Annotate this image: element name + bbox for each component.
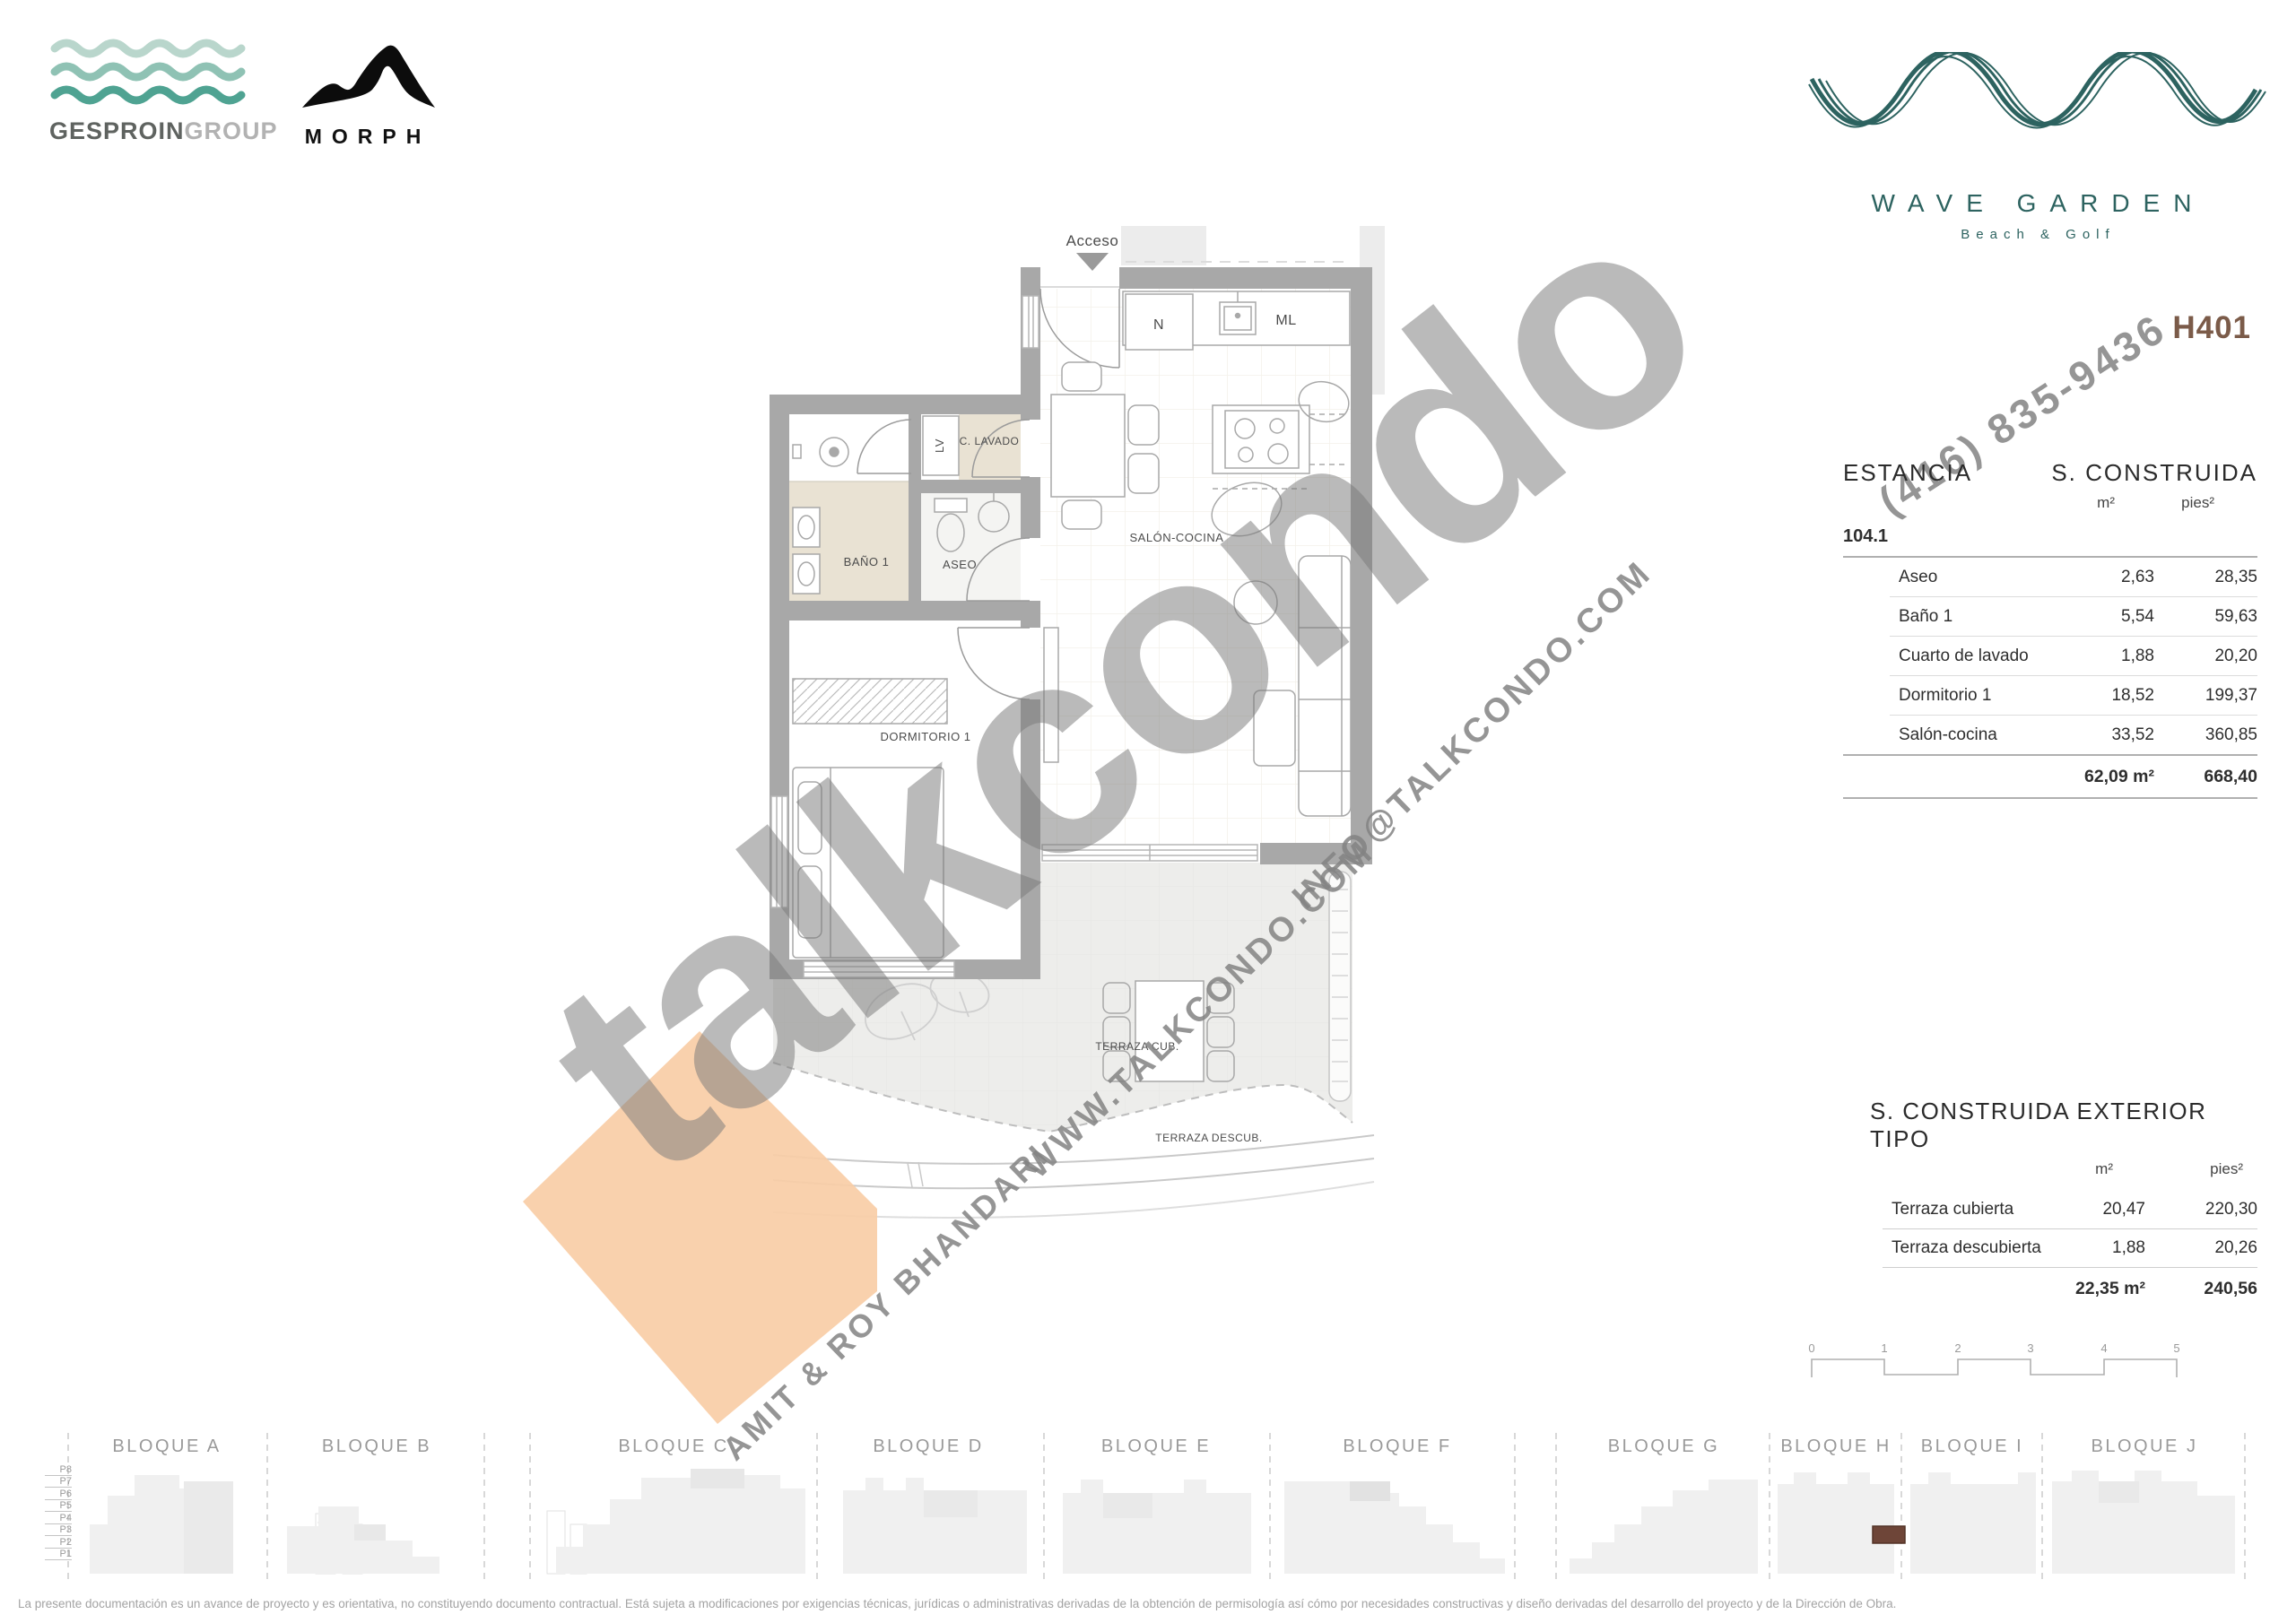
scale-bar: 0 1 2 3 4 5 — [1808, 1341, 2179, 1377]
c-lavado-label: C. LAVADO — [960, 435, 1020, 447]
block-label-h: BLOQUE H — [1780, 1436, 1891, 1457]
floor-label-p4: P4 — [45, 1513, 72, 1524]
wave-garden-title: WAVE GARDEN — [1807, 189, 2269, 218]
wave-garden-logo: WAVE GARDEN Beach & Golf — [1807, 52, 2269, 242]
block-label-e: BLOQUE E — [1101, 1436, 1211, 1457]
units-row: m² pies² — [1870, 1160, 2257, 1178]
area-table: ESTANCIA S. CONSTRUIDA m² pies² 104.1 As… — [1843, 459, 2257, 799]
total-pies2: 240,56 — [2145, 1279, 2257, 1299]
block-label-j: BLOQUE J — [2092, 1436, 2198, 1457]
block-label-b: BLOQUE B — [322, 1436, 431, 1457]
wave-garden-subtitle: Beach & Golf — [1807, 227, 2269, 242]
lv-label: LV — [933, 438, 946, 453]
gesproin-name: GESPROIN — [49, 117, 185, 144]
area-rows: Aseo 2,63 28,35 Baño 1 5,54 59,63 Cuarto… — [1843, 556, 2257, 754]
room-pies2: 20,26 — [2145, 1238, 2257, 1258]
total-m2: 22,35 m² — [2011, 1279, 2145, 1299]
highlighted-unit-marker — [1873, 1526, 1905, 1543]
total-m2: 62,09 m² — [2020, 767, 2154, 787]
scale-tick: 1 — [1881, 1341, 1887, 1355]
room-m2: 5,54 — [2056, 607, 2154, 627]
terraza-descub-label: TERRAZA DESCUB. — [1155, 1132, 1263, 1144]
table-row: Dormitorio 1 18,52 199,37 — [1890, 676, 2257, 716]
room-m2: 33,52 — [2056, 725, 2154, 745]
room-name: Terraza cubierta — [1883, 1200, 2051, 1219]
col-estancia: ESTANCIA — [1843, 459, 1972, 487]
table-row: Terraza descubierta 1,88 20,26 — [1883, 1229, 2257, 1268]
table-total-row: 22,35 m² 240,56 — [1870, 1268, 2257, 1309]
floor-label-p8: P8 — [45, 1464, 72, 1476]
morph-name: MORPH — [300, 125, 435, 149]
floor-label-p5: P5 — [45, 1500, 72, 1512]
exterior-table: S. CONSTRUIDA EXTERIOR TIPO m² pies² Ter… — [1870, 1098, 2257, 1309]
gesproin-waves-icon — [49, 38, 247, 106]
room-m2: 1,88 — [2056, 647, 2154, 666]
room-pies2: 199,37 — [2154, 686, 2257, 706]
exterior-title: S. CONSTRUIDA EXTERIOR TIPO — [1870, 1098, 2257, 1153]
room-name: Dormitorio 1 — [1890, 686, 2056, 706]
room-m2: 20,47 — [2051, 1200, 2145, 1219]
room-pies2: 20,20 — [2154, 647, 2257, 666]
room-m2: 1,88 — [2051, 1238, 2145, 1258]
room-pies2: 220,30 — [2145, 1200, 2257, 1219]
morph-mountain-icon — [300, 38, 435, 109]
exterior-rows: Terraza cubierta 20,47 220,30 Terraza de… — [1870, 1191, 2257, 1268]
gesproin-logo: GESPROINGROUP — [49, 38, 278, 145]
room-pies2: 59,63 — [2154, 607, 2257, 627]
block-label-d: BLOQUE D — [873, 1436, 983, 1457]
block-label-c: BLOQUE C — [618, 1436, 728, 1457]
unit-m2: m² — [2051, 1160, 2145, 1178]
kitchen-ml-label: ML — [1275, 313, 1296, 328]
morph-logo: MORPH — [300, 38, 435, 149]
table-row: Salón-cocina 33,52 360,85 — [1890, 716, 2257, 754]
terrace-planter — [1329, 872, 1351, 1101]
room-m2: 2,63 — [2056, 568, 2154, 587]
scale-tick: 2 — [1954, 1341, 1961, 1355]
room-pies2: 28,35 — [2154, 568, 2257, 587]
wave-garden-ribbon-icon — [1807, 52, 2269, 169]
table-total-row: 62,09 m² 668,40 — [1843, 754, 2257, 799]
bano1-label: BAÑO 1 — [844, 555, 890, 568]
table-row: Cuarto de lavado 1,88 20,20 — [1890, 637, 2257, 676]
scale-tick: 5 — [2173, 1341, 2179, 1355]
block-label-i: BLOQUE I — [1921, 1436, 2023, 1457]
room-name: Terraza descubierta — [1883, 1238, 2051, 1258]
scale-tick: 0 — [1808, 1341, 1814, 1355]
gesproin-group: GROUP — [185, 117, 278, 144]
unit-m2: m² — [2056, 494, 2154, 512]
footer-disclaimer: La presente documentación es un avance d… — [18, 1597, 2233, 1610]
floor-label-p7: P7 — [45, 1476, 72, 1488]
floor-label-p2: P2 — [45, 1537, 72, 1549]
unit-code: H401 — [2148, 310, 2251, 346]
floor-plan-canvas: Acceso N ML C. LAVADO LV BAÑO 1 ASEO DOR… — [0, 0, 2296, 1623]
kitchen-n-label: N — [1153, 317, 1164, 333]
floor-label-p3: P3 — [45, 1524, 72, 1536]
room-pies2: 360,85 — [2154, 725, 2257, 745]
floor-label-p6: P6 — [45, 1488, 72, 1500]
scale-tick: 4 — [2100, 1341, 2107, 1355]
acceso-arrow-icon — [1076, 253, 1109, 271]
col-construida: S. CONSTRUIDA — [2051, 459, 2257, 487]
room-name: Aseo — [1890, 568, 2056, 587]
room-name: Baño 1 — [1890, 607, 2056, 627]
total-pies2: 668,40 — [2154, 767, 2257, 787]
floor-label-p1: P1 — [45, 1549, 72, 1560]
block-label-f: BLOQUE F — [1343, 1436, 1451, 1457]
block-label-g: BLOQUE G — [1608, 1436, 1719, 1457]
aseo-label: ASEO — [943, 558, 977, 571]
room-name: Cuarto de lavado — [1890, 647, 2056, 666]
unit-group: 104.1 — [1843, 526, 2257, 547]
acceso-label: Acceso — [1066, 232, 1119, 249]
room-name: Salón-cocina — [1890, 725, 2056, 745]
dormitorio1-label: DORMITORIO 1 — [880, 730, 970, 743]
table-row: Terraza cubierta 20,47 220,30 — [1883, 1191, 2257, 1229]
scale-tick: 3 — [2027, 1341, 2033, 1355]
table-row: Baño 1 5,54 59,63 — [1890, 597, 2257, 637]
brochure-page: { "branding": { "gesproin_bold": "GESPRO… — [0, 0, 2296, 1623]
units-row: m² pies² — [1843, 494, 2257, 512]
terraza-cub-label: TERRAZA CUB. — [1095, 1040, 1178, 1053]
unit-pies2: pies² — [2145, 1160, 2257, 1178]
unit-pies2: pies² — [2154, 494, 2257, 512]
salon-cocina-label: SALÓN-COCINA — [1130, 531, 1224, 544]
block-label-a: BLOQUE A — [112, 1436, 221, 1457]
table-row: Aseo 2,63 28,35 — [1890, 558, 2257, 597]
room-m2: 18,52 — [2056, 686, 2154, 706]
unit-highlight-diamond — [523, 1031, 877, 1424]
